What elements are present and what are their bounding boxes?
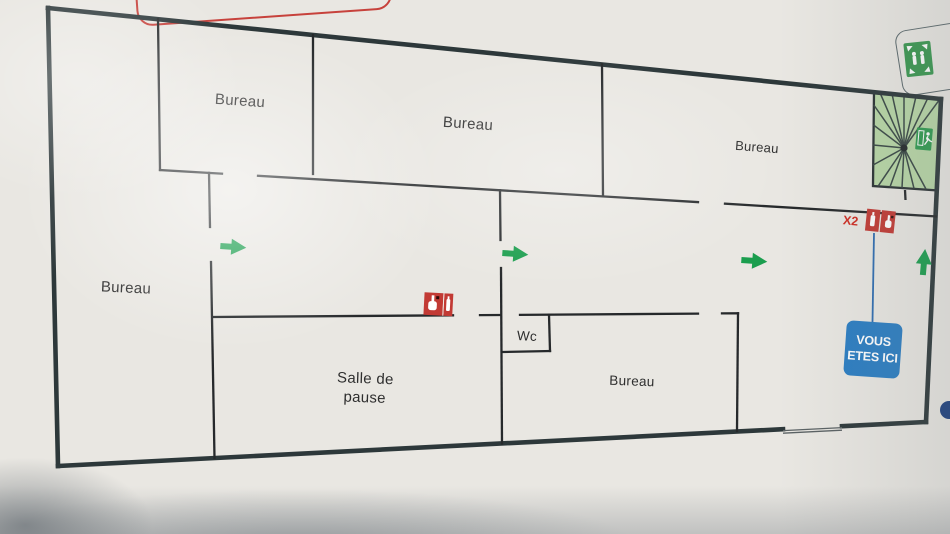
room-label-bureau-bottom: Bureau — [609, 373, 655, 390]
you-are-here-badge: VOUS ETES ICI — [843, 320, 903, 379]
you-are-here-line — [873, 233, 875, 322]
entrance-door — [783, 428, 842, 434]
evacuation-arrow-icon — [741, 252, 768, 270]
emergency-exit-icon — [915, 127, 933, 150]
evacuation-plan-photo: Bureau Bureau Bureau Bureau Bureau Salle… — [0, 0, 950, 534]
corridor-call-point — [423, 292, 453, 316]
room-label-break-room: Salle de pause — [336, 369, 394, 408]
evacuation-arrow-icon — [502, 245, 529, 263]
x2-safety-icons — [865, 209, 896, 234]
evacuation-arrows — [220, 238, 933, 276]
room-label-bureau-top-middle: Bureau — [442, 114, 493, 134]
evacuation-arrow-icon — [220, 238, 247, 256]
break-room-line1: Salle de — [337, 369, 394, 390]
you-are-here-line2: ETES ICI — [847, 348, 898, 367]
break-room-line2: pause — [336, 388, 393, 409]
extinguisher-count-label: X2 — [842, 213, 859, 229]
room-label-bureau-top-left: Bureau — [214, 91, 265, 111]
room-label-bureau-left: Bureau — [101, 278, 152, 297]
floor-plan — [0, 0, 950, 534]
room-label-toilet: Wc — [517, 328, 538, 344]
outer-walls — [48, 8, 941, 466]
evacuation-arrow-icon — [915, 248, 933, 275]
